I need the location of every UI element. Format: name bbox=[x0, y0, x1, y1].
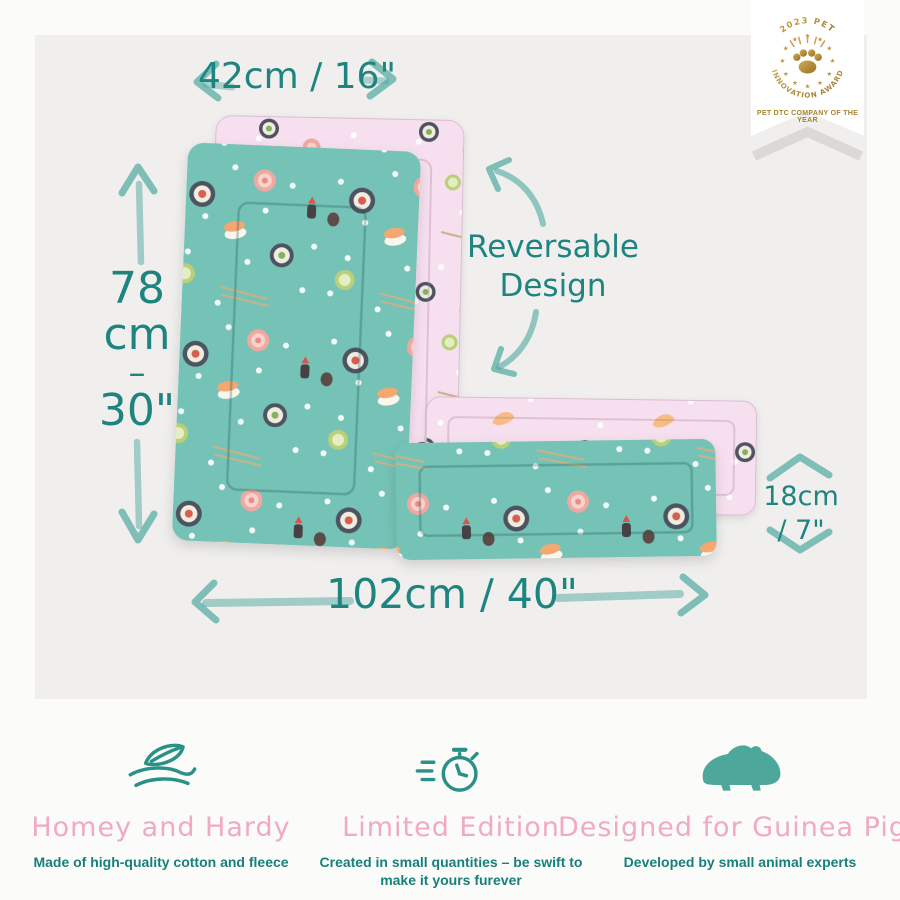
height-inches: 30" bbox=[99, 388, 175, 434]
bottom-length-label: 102cm / 40" bbox=[326, 570, 578, 618]
reversible-callout: Reversable Design bbox=[467, 228, 639, 306]
height-cm-unit: cm bbox=[99, 312, 175, 358]
star-icon: ★ bbox=[779, 57, 785, 65]
star-icon: ★ bbox=[830, 57, 836, 65]
feature-description: Created in small quantities – be swift t… bbox=[301, 853, 601, 889]
star-icon: ★ bbox=[783, 70, 789, 78]
left-height-label: 78 cm – 30" bbox=[99, 266, 175, 434]
feature-guinea-pigs: Designed for Guinea Pigs Developed by sm… bbox=[590, 738, 890, 871]
height-dash: – bbox=[99, 358, 175, 389]
svg-text:2023 PET: 2023 PET bbox=[778, 15, 838, 34]
height-cm-value: 78 bbox=[99, 266, 175, 312]
feature-description: Developed by small animal experts bbox=[624, 853, 857, 871]
star-icon: ★ bbox=[783, 45, 789, 53]
feature-material: Homey and Hardy Made of high-quality cot… bbox=[11, 738, 311, 871]
right-height-label: 18cm / 7" bbox=[763, 480, 839, 548]
feature-description: Made of high-quality cotton and fleece bbox=[33, 853, 288, 871]
feature-title: Homey and Hardy bbox=[31, 812, 290, 843]
reversible-line2: Design bbox=[467, 267, 639, 306]
award-arc-top: 2023 PET bbox=[778, 15, 838, 34]
ribbon-fold bbox=[751, 124, 864, 164]
feature-limited-edition: Limited Edition Created in small quantit… bbox=[301, 738, 601, 889]
guinea-pig-icon bbox=[688, 738, 792, 800]
star-icon: ★ bbox=[792, 36, 798, 44]
star-icon: ★ bbox=[792, 79, 798, 87]
stopwatch-icon bbox=[403, 738, 499, 800]
feature-title: Designed for Guinea Pigs bbox=[558, 812, 900, 843]
star-icon: ★ bbox=[826, 70, 832, 78]
product-infographic: 42cm / 16" 78 cm – 30" 18cm / 7" 102cm /… bbox=[0, 0, 900, 900]
cozy-fabric-icon bbox=[113, 738, 209, 800]
feature-title: Limited Edition bbox=[342, 812, 560, 843]
award-ribbon: 2023 PET INNOVATION AWARD ★ ★ ★ ★ ★ ★ ★ … bbox=[751, 0, 864, 172]
strip-height-inches: / 7" bbox=[763, 514, 839, 548]
award-badge: 2023 PET INNOVATION AWARD ★ ★ ★ ★ ★ ★ ★ … bbox=[755, 6, 860, 114]
star-icon: ★ bbox=[805, 82, 811, 90]
award-tagline: PET DTC COMPANY OF THE YEAR bbox=[751, 110, 864, 124]
star-icon: ★ bbox=[817, 36, 823, 44]
reversible-line1: Reversable bbox=[467, 228, 639, 267]
top-width-label: 42cm / 16" bbox=[198, 56, 396, 97]
star-icon: ★ bbox=[817, 79, 823, 87]
star-icon: ★ bbox=[826, 45, 832, 53]
strip-height-cm: 18cm bbox=[763, 480, 839, 514]
